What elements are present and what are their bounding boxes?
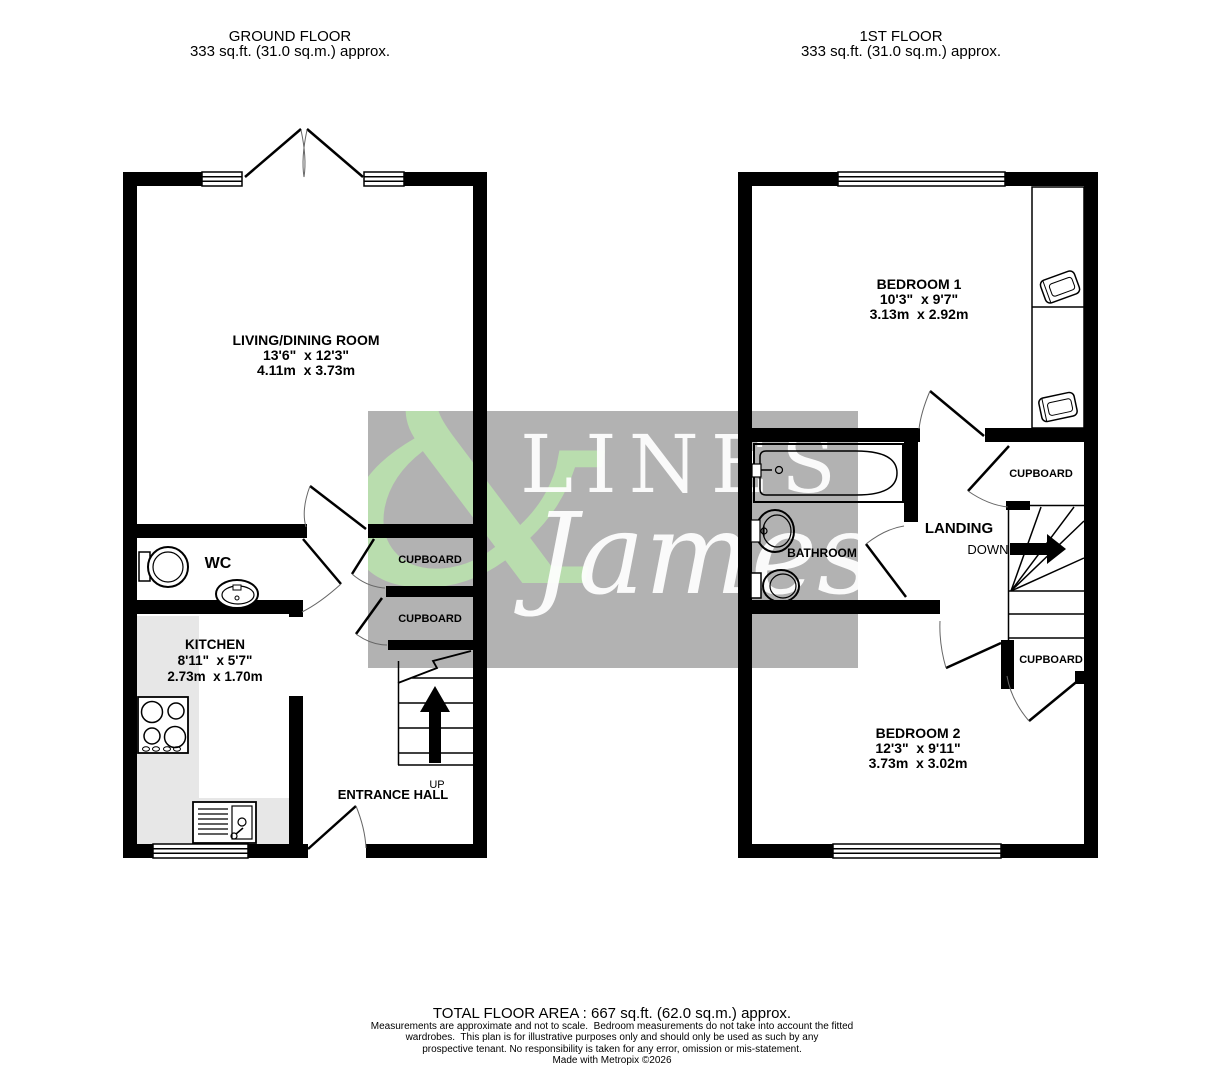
floorplan-page: & LINES James [0,0,1224,1080]
door-cupboard-bottom-icon [1007,676,1080,721]
french-doors-icon [245,129,363,177]
bathroom-toilet-icon [751,570,799,602]
window-icon [364,172,404,186]
armchair-icon [1039,270,1081,305]
window-icon [153,844,248,858]
ground-floor-area: 333 sq.ft. (31.0 sq.m.) approx. [190,44,390,59]
up-label: UP [429,779,444,791]
armchair-icon [1038,392,1078,423]
door-cupboard2-icon [356,598,387,645]
metropix-credit: Made with Metropix ©2026 [371,1055,854,1066]
bedroom1-label: BEDROOM 1 10'3" x 9'7" 3.13m x 2.92m [870,277,969,323]
cupboard1-label: CUPBOARD [398,554,462,566]
stairs-down-icon [1008,505,1084,640]
window-icon [202,172,242,186]
wc-label: WC [205,555,232,573]
bathroom-label: BATHROOM [787,546,857,560]
total-floor-area: TOTAL FLOOR AREA : 667 sq.ft. (62.0 sq.m… [433,1005,791,1022]
living-room-label: LIVING/DINING ROOM 13'6" x 12'3" 4.11m x… [233,333,380,379]
wardrobe-icon [1032,187,1084,428]
up-arrow-icon [420,686,450,763]
window-icon [833,844,1001,858]
down-label: DOWN [967,542,1008,557]
kitchen-label: KITCHEN 8'11" x 5'7" 2.73m x 1.70m [167,637,262,685]
wc-basin-icon [216,580,258,608]
stairs-up-icon [398,651,473,765]
disclaimer: Measurements are approximate and not to … [371,1021,854,1067]
door-bedroom1-icon [919,391,984,436]
ground-floor-plan [123,129,487,858]
door-cupboard-top-icon [968,446,1009,507]
bathtub-icon [752,444,903,502]
door-wc-icon [302,539,341,612]
bedroom2-label: BEDROOM 2 12'3" x 9'11" 3.73m x 3.02m [869,726,968,772]
cupboard-top-label: CUPBOARD [1009,468,1073,480]
first-floor-header: 1ST FLOOR 333 sq.ft. (31.0 sq.m.) approx… [801,29,1001,59]
sink-icon [193,802,256,843]
wc-toilet-icon [139,547,188,587]
cupboard2-label: CUPBOARD [398,613,462,625]
floorplan-drawing [0,0,1224,1080]
first-floor-area: 333 sq.ft. (31.0 sq.m.) approx. [801,44,1001,59]
door-bathroom-icon [866,526,906,597]
door-bedroom2-icon [940,621,1001,668]
door-cupboard1-icon [352,539,385,588]
door-living-icon [304,486,366,529]
landing-label: LANDING [925,520,993,537]
ground-floor-header: GROUND FLOOR 333 sq.ft. (31.0 sq.m.) app… [190,29,390,59]
door-entrance-icon [308,806,366,849]
down-arrow-icon [1010,534,1066,564]
cupboard-bottom-label: CUPBOARD [1019,654,1083,666]
window-icon [838,172,1005,186]
ground-floor-title: GROUND FLOOR [190,29,390,44]
first-floor-title: 1ST FLOOR [801,29,1001,44]
hob-icon [138,697,188,753]
